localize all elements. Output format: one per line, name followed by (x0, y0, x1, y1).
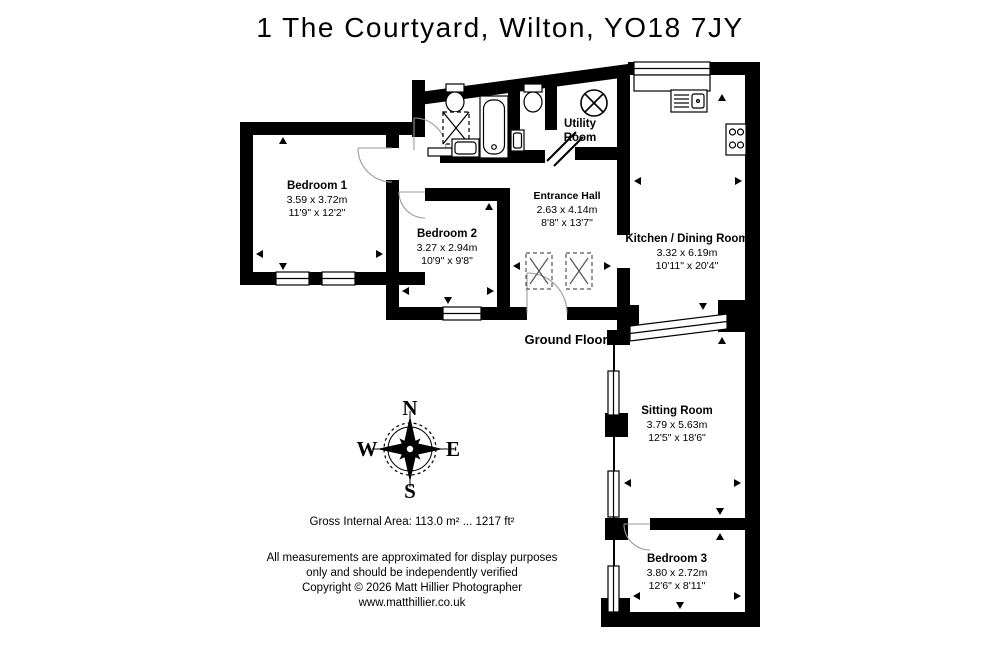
compass-north-label: N (402, 396, 417, 420)
gross-internal-area: Gross Internal Area: 113.0 m² ... 1217 f… (310, 516, 515, 528)
compass-east-label: E (446, 437, 460, 461)
disclaimer-line-2: only and should be independently verifie… (267, 566, 558, 581)
floorplan-page: 1 The Courtyard, Wilton, YO18 7JY (0, 0, 1000, 667)
copyright-line: Copyright © 2026 Matt Hillier Photograph… (267, 581, 558, 596)
disclaimer-line-1: All measurements are approximated for di… (267, 551, 558, 566)
compass-south-label: S (404, 479, 416, 503)
disclaimer-block: All measurements are approximated for di… (267, 551, 558, 611)
compass-center-dot (407, 446, 413, 452)
compass-west-label: W (357, 437, 378, 461)
website-line: www.matthillier.co.uk (267, 596, 558, 611)
